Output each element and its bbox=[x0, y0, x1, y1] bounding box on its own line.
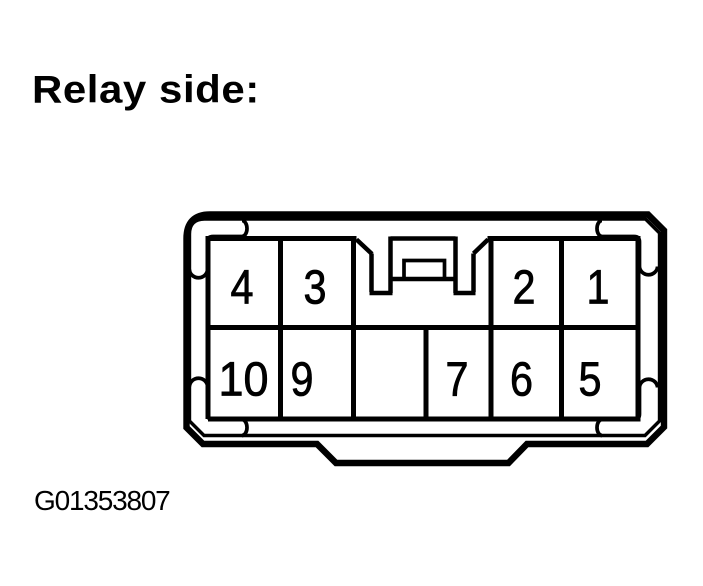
svg-text:3: 3 bbox=[304, 262, 327, 315]
svg-text:7: 7 bbox=[446, 354, 469, 407]
svg-text:4: 4 bbox=[231, 262, 254, 315]
svg-text:10: 10 bbox=[219, 354, 269, 407]
svg-text:6: 6 bbox=[510, 354, 533, 407]
svg-text:9: 9 bbox=[291, 354, 314, 407]
svg-text:5: 5 bbox=[579, 354, 602, 407]
svg-text:2: 2 bbox=[513, 262, 536, 315]
svg-text:1: 1 bbox=[587, 262, 610, 315]
